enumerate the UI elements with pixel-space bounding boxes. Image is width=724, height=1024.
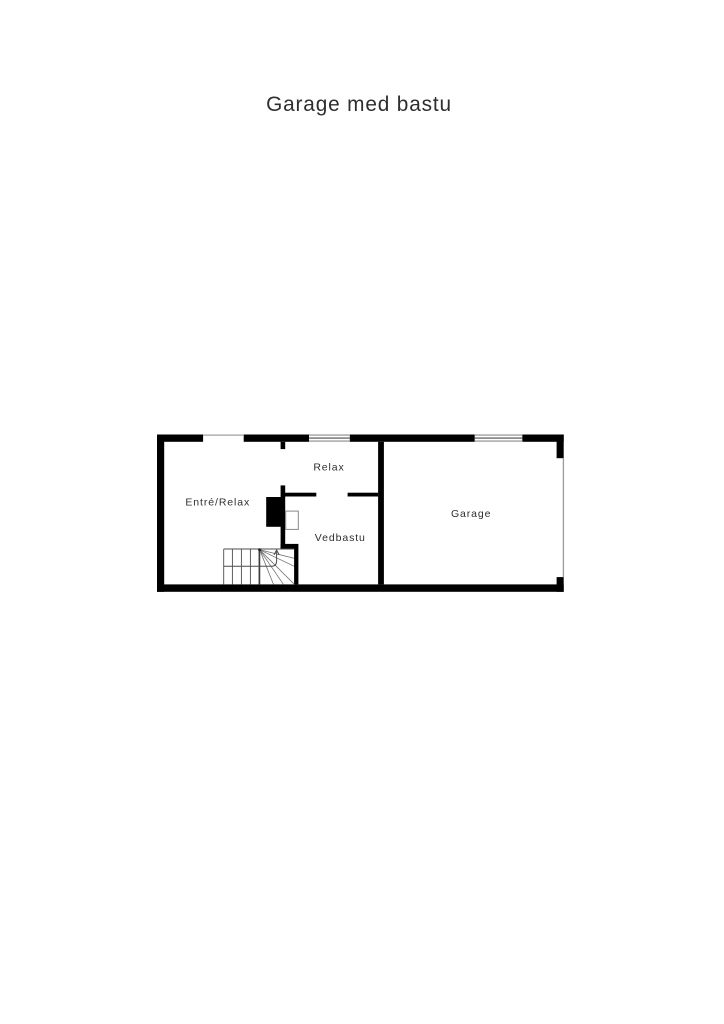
svg-text:Entré/Relax: Entré/Relax xyxy=(185,497,250,509)
svg-text:Relax: Relax xyxy=(313,462,344,474)
svg-text:Garage med bastu: Garage med bastu xyxy=(266,93,452,116)
svg-text:Garage: Garage xyxy=(451,508,491,520)
svg-text:Vedbastu: Vedbastu xyxy=(315,532,366,544)
